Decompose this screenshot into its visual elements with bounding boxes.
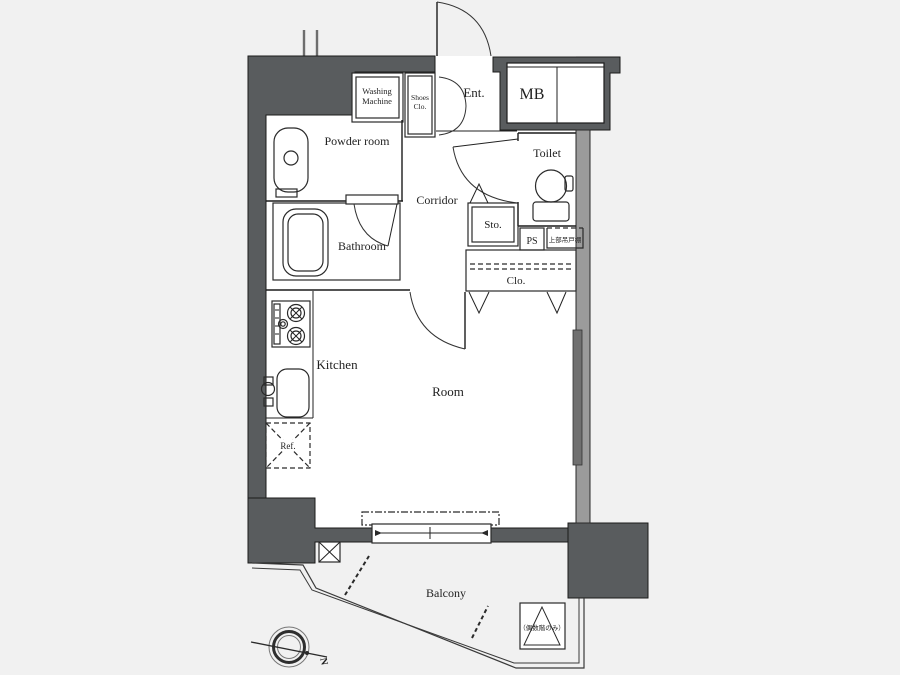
storage-label: Sto. (484, 219, 502, 231)
shoes-closet-label: Shoes (411, 93, 429, 102)
kitchen-label: Kitchen (316, 357, 358, 372)
washing-machine-label2: Machine (362, 96, 392, 106)
washing-machine-label: Washing (362, 86, 392, 96)
washing-machine-area: Washing Machine (352, 73, 403, 122)
toilet-label: Toilet (533, 146, 561, 160)
wall-bottom-right (568, 523, 648, 598)
shoes-closet-label2: Clo. (414, 102, 427, 111)
meter-box-label: MB (520, 86, 545, 103)
balcony-label: Balcony (426, 586, 466, 600)
meter-box-area: MB (507, 63, 604, 123)
evacuation-hatch: （偶数階のみ） (519, 603, 565, 649)
hatch-box (319, 542, 340, 562)
bathroom-label: Bathroom (338, 239, 387, 253)
right-window (573, 330, 582, 465)
floor-plan: MB Ent. Washing Machine Shoes Clo. Powde… (0, 0, 900, 675)
bathroom-sliding-door (346, 195, 398, 204)
powder-room-label: Powder room (325, 134, 391, 148)
ps-label: PS (526, 236, 537, 247)
entrance-label: Ent. (463, 85, 484, 100)
wall-bottom-mid (491, 528, 568, 542)
shoes-closet-area: Shoes Clo. (405, 73, 435, 137)
hatch-note-label: （偶数階のみ） (519, 623, 565, 632)
refrigerator-label: Ref. (280, 441, 295, 451)
closet-label: Clo. (507, 275, 526, 287)
upper-cabinet-label: 上部吊戸棚 (549, 235, 582, 244)
corridor-label: Corridor (416, 193, 457, 207)
floor-plan-canvas: MB Ent. Washing Machine Shoes Clo. Powde… (0, 0, 900, 675)
room-label: Room (432, 384, 464, 399)
